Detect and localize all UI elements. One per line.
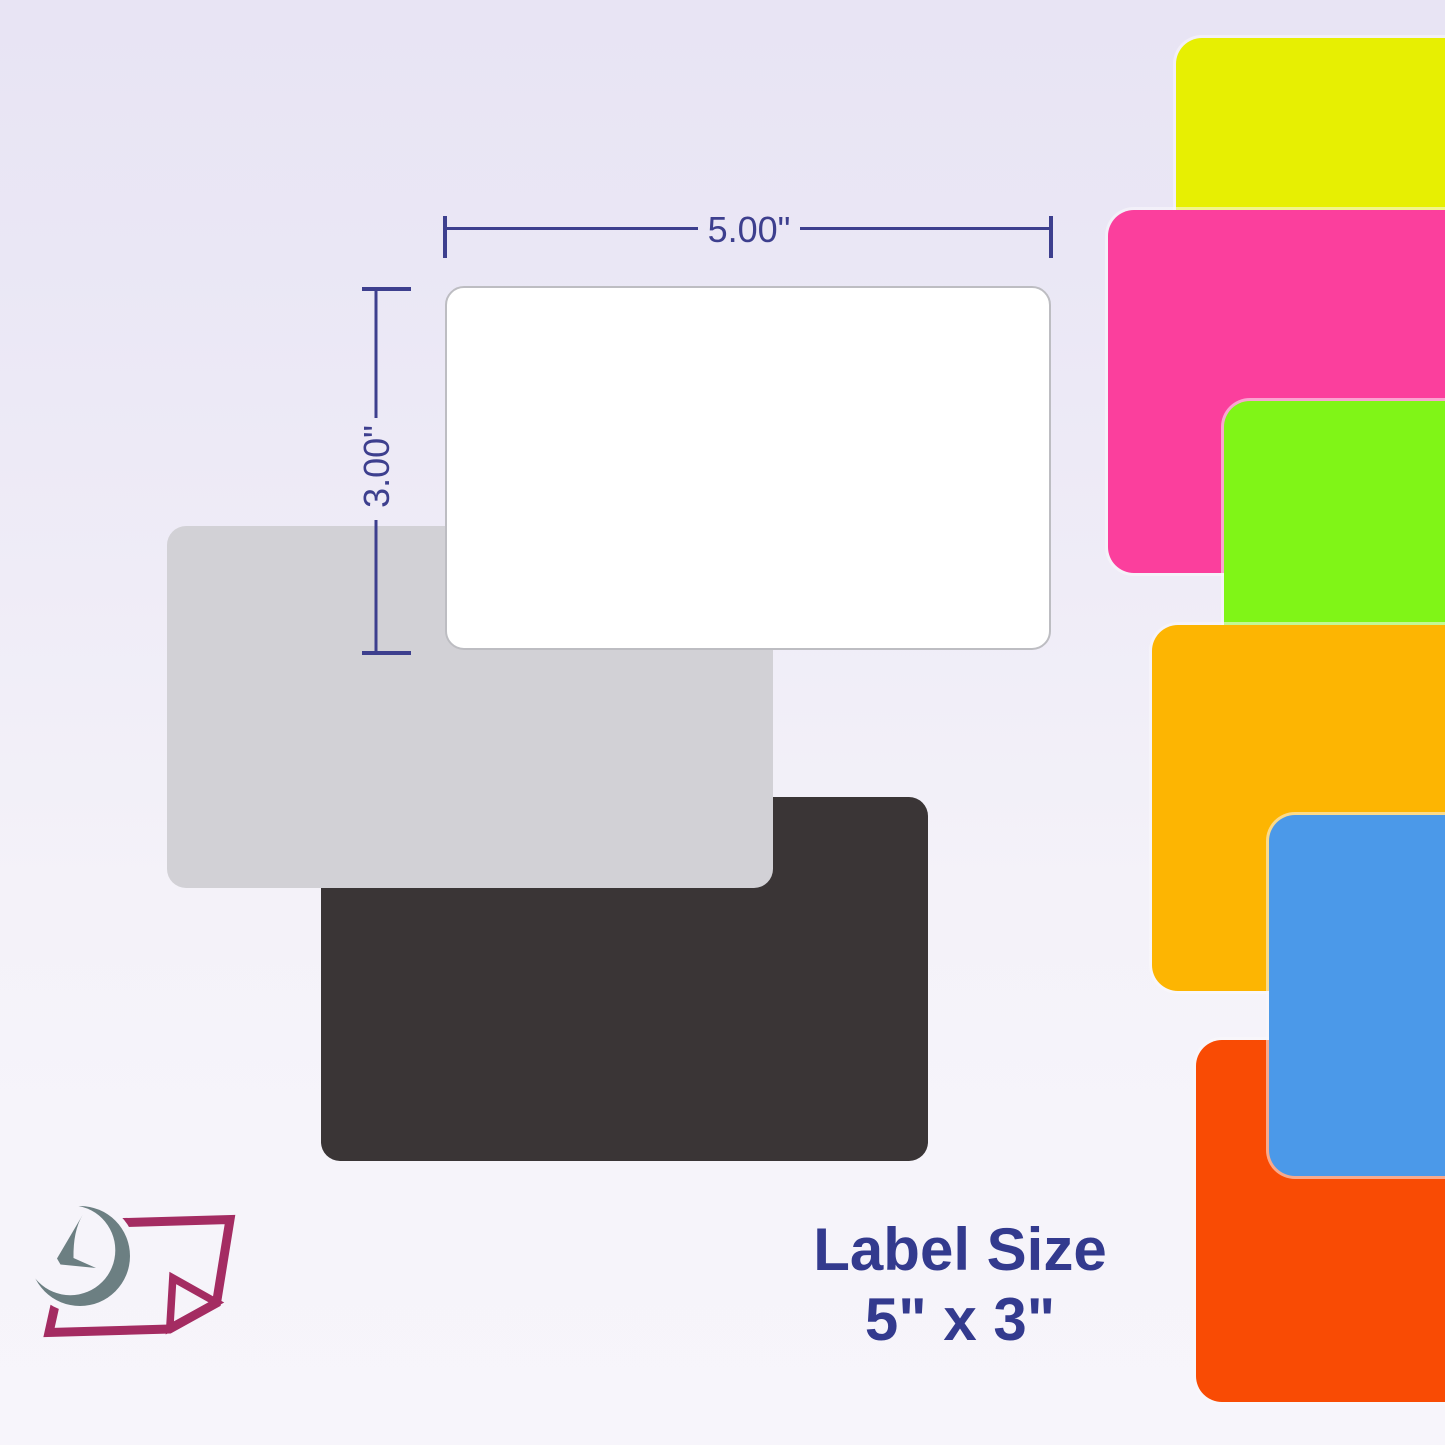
svg-text:3.00": 3.00" bbox=[356, 425, 397, 508]
svg-text:5.00": 5.00" bbox=[708, 209, 791, 250]
